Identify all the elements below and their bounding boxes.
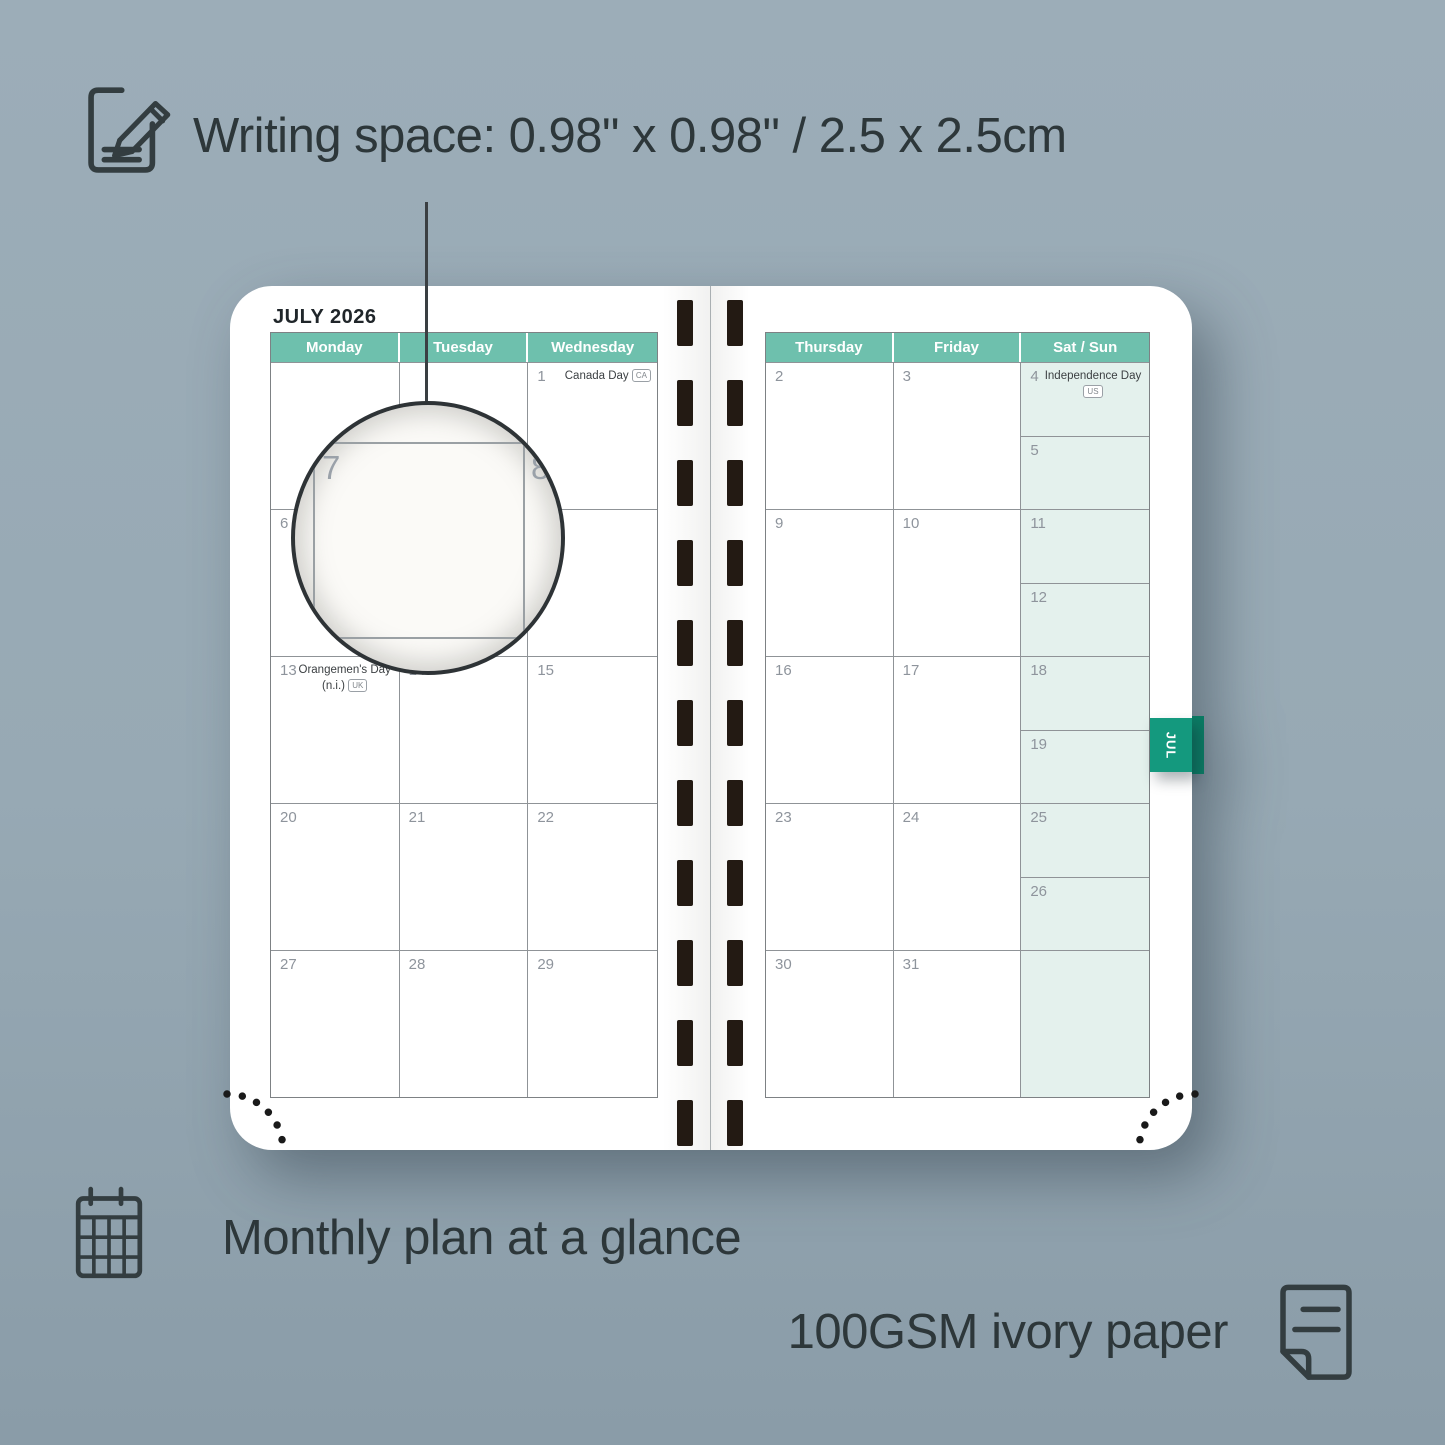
day-number: 28 [409,957,426,974]
calendar-cell: 15 [528,656,657,803]
calendar-cell: 1819 [1021,656,1149,803]
day-header-monday: Monday [271,333,400,362]
binding-hole [677,380,693,426]
day-number: 10 [903,516,920,533]
calendar-icon [75,1186,143,1280]
binding-hole [727,620,743,666]
magnifier-circle: 7 8 [291,401,565,675]
day-number: 1 [537,369,545,386]
country-badge: CA [632,369,651,382]
day-number: 16 [775,663,792,680]
day-number: 21 [409,810,426,827]
calendar-grid-right: Thursday Friday Sat / Sun 234Independenc… [765,332,1150,1098]
weekend-half-cell: 5 [1021,437,1149,510]
binding-hole [677,540,693,586]
day-header-friday: Friday [894,333,1022,362]
calendar-cell [1021,950,1149,1097]
holiday-label: Orangemen's Day (n.i.) UK [297,663,393,694]
binding-hole [677,1020,693,1066]
calendar-cell: 30 [766,950,894,1097]
calendar-cell: 9 [766,509,894,656]
magnified-grid-line [523,442,525,675]
magnified-day-number: 8 [531,449,549,487]
day-header-satsun: Sat / Sun [1021,333,1149,362]
binding-hole [727,1100,743,1146]
calendar-cell: 29 [528,950,657,1097]
calendar-cell: 20 [271,803,400,950]
calendar-cell: 31 [894,950,1022,1097]
weekend-half-cell: 12 [1021,584,1149,657]
binding-hole [677,460,693,506]
weekend-half-cell: 4Independence Day US [1021,363,1149,437]
dotted-corner-left [220,1086,300,1162]
day-number: 12 [1030,590,1047,607]
binding-hole [677,620,693,666]
day-number: 25 [1030,810,1047,827]
binding-hole [727,780,743,826]
magnified-day-number: 7 [322,449,340,487]
holiday-label: Canada Day CA [565,369,651,385]
day-number: 6 [280,516,288,533]
day-number: 2 [775,369,783,386]
paper-spec-label: 100GSM ivory paper [788,1304,1228,1360]
day-number: 30 [775,957,792,974]
dotted-corner-right [1122,1086,1202,1162]
day-number: 20 [280,810,297,827]
day-number: 11 [1030,516,1046,533]
day-number: 9 [775,516,783,533]
day-number: 13 [280,663,297,680]
day-number: 18 [1030,663,1047,680]
day-number: 23 [775,810,792,827]
paper-sheet-icon [1272,1278,1360,1392]
day-number: 31 [903,957,920,974]
calendar-cell: 23 [766,803,894,950]
monthly-plan-label: Monthly plan at a glance [222,1210,741,1266]
page-seam [710,286,711,1150]
calendar-cell: 13Orangemen's Day (n.i.) UK [271,656,400,803]
binding-hole [677,300,693,346]
day-number: 5 [1030,443,1038,460]
magnified-grid-line [313,442,315,675]
calendar-cell: 3 [894,362,1022,509]
day-number: 22 [537,810,554,827]
day-header-wednesday: Wednesday [528,333,657,362]
calendar-cell: 24 [894,803,1022,950]
month-tab-edge [1192,716,1204,774]
holiday-label: Independence Day US [1043,369,1143,400]
weekend-half-cell: 19 [1021,731,1149,804]
binding-hole [727,460,743,506]
writing-space-label: Writing space: 0.98" x 0.98" / 2.5 x 2.5… [193,108,1067,164]
day-number: 29 [537,957,554,974]
calendar-cell: 14 [400,656,529,803]
day-number: 4 [1030,369,1038,386]
day-number: 26 [1030,884,1047,901]
calendar-cell: 17 [894,656,1022,803]
day-number: 24 [903,810,920,827]
day-number: 3 [903,369,911,386]
month-tab-jul[interactable]: JUL [1150,718,1192,772]
binding-hole [677,940,693,986]
binding-hole [677,1100,693,1146]
calendar-cell: 2 [766,362,894,509]
calendar-cell: 21 [400,803,529,950]
binding-hole [727,860,743,906]
pencil-note-icon [88,70,180,182]
day-number: 17 [903,663,920,680]
binding-hole [677,780,693,826]
day-number: 27 [280,957,297,974]
calendar-cell: 22 [528,803,657,950]
weekend-half-cell: 18 [1021,657,1149,731]
day-number: 15 [537,663,554,680]
month-tab-label: JUL [1164,731,1179,759]
binding-hole [677,700,693,746]
binding-hole [727,300,743,346]
binding-hole [727,1020,743,1066]
weekend-half-cell: 25 [1021,804,1149,878]
binding-hole [727,380,743,426]
country-badge: UK [348,679,367,692]
weekend-half-cell: 11 [1021,510,1149,584]
callout-connector-line [425,202,428,405]
country-badge: US [1083,385,1102,398]
calendar-cell: 16 [766,656,894,803]
planner-right-page: Thursday Friday Sat / Sun 234Independenc… [711,286,1192,1150]
weekend-half-cell: 26 [1021,878,1149,951]
binding-hole [677,860,693,906]
calendar-cell: 1112 [1021,509,1149,656]
calendar-cell: 28 [400,950,529,1097]
binding-hole [727,700,743,746]
calendar-cell: 10 [894,509,1022,656]
magnified-grid-line [313,637,524,639]
calendar-cell: 4Independence Day US5 [1021,362,1149,509]
calendar-cell: 2526 [1021,803,1149,950]
binding-hole [727,940,743,986]
binding-hole [727,540,743,586]
day-header-tuesday: Tuesday [400,333,529,362]
month-title: JULY 2026 [273,306,376,329]
calendar-cell: 27 [271,950,400,1097]
day-header-thursday: Thursday [766,333,894,362]
day-number: 19 [1030,737,1047,754]
